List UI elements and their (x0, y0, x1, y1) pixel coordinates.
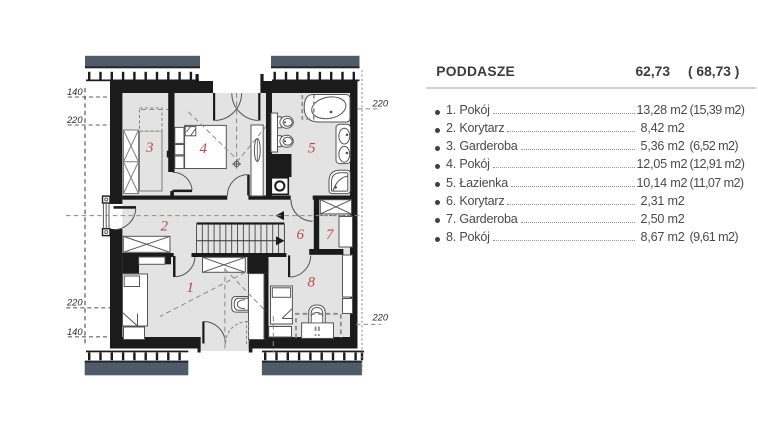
svg-text:220: 220 (66, 115, 83, 125)
svg-text:1: 1 (187, 280, 195, 296)
svg-text:220: 220 (372, 98, 389, 108)
svg-text:8: 8 (308, 275, 316, 291)
svg-text:220: 220 (66, 297, 83, 307)
svg-text:5: 5 (308, 141, 316, 157)
svg-text:4: 4 (200, 141, 208, 157)
svg-text:140: 140 (67, 87, 83, 97)
svg-text:3: 3 (145, 140, 154, 156)
svg-text:140: 140 (67, 327, 83, 337)
svg-text:2: 2 (161, 219, 169, 235)
svg-text:220: 220 (372, 313, 389, 323)
svg-text:6: 6 (297, 227, 305, 243)
